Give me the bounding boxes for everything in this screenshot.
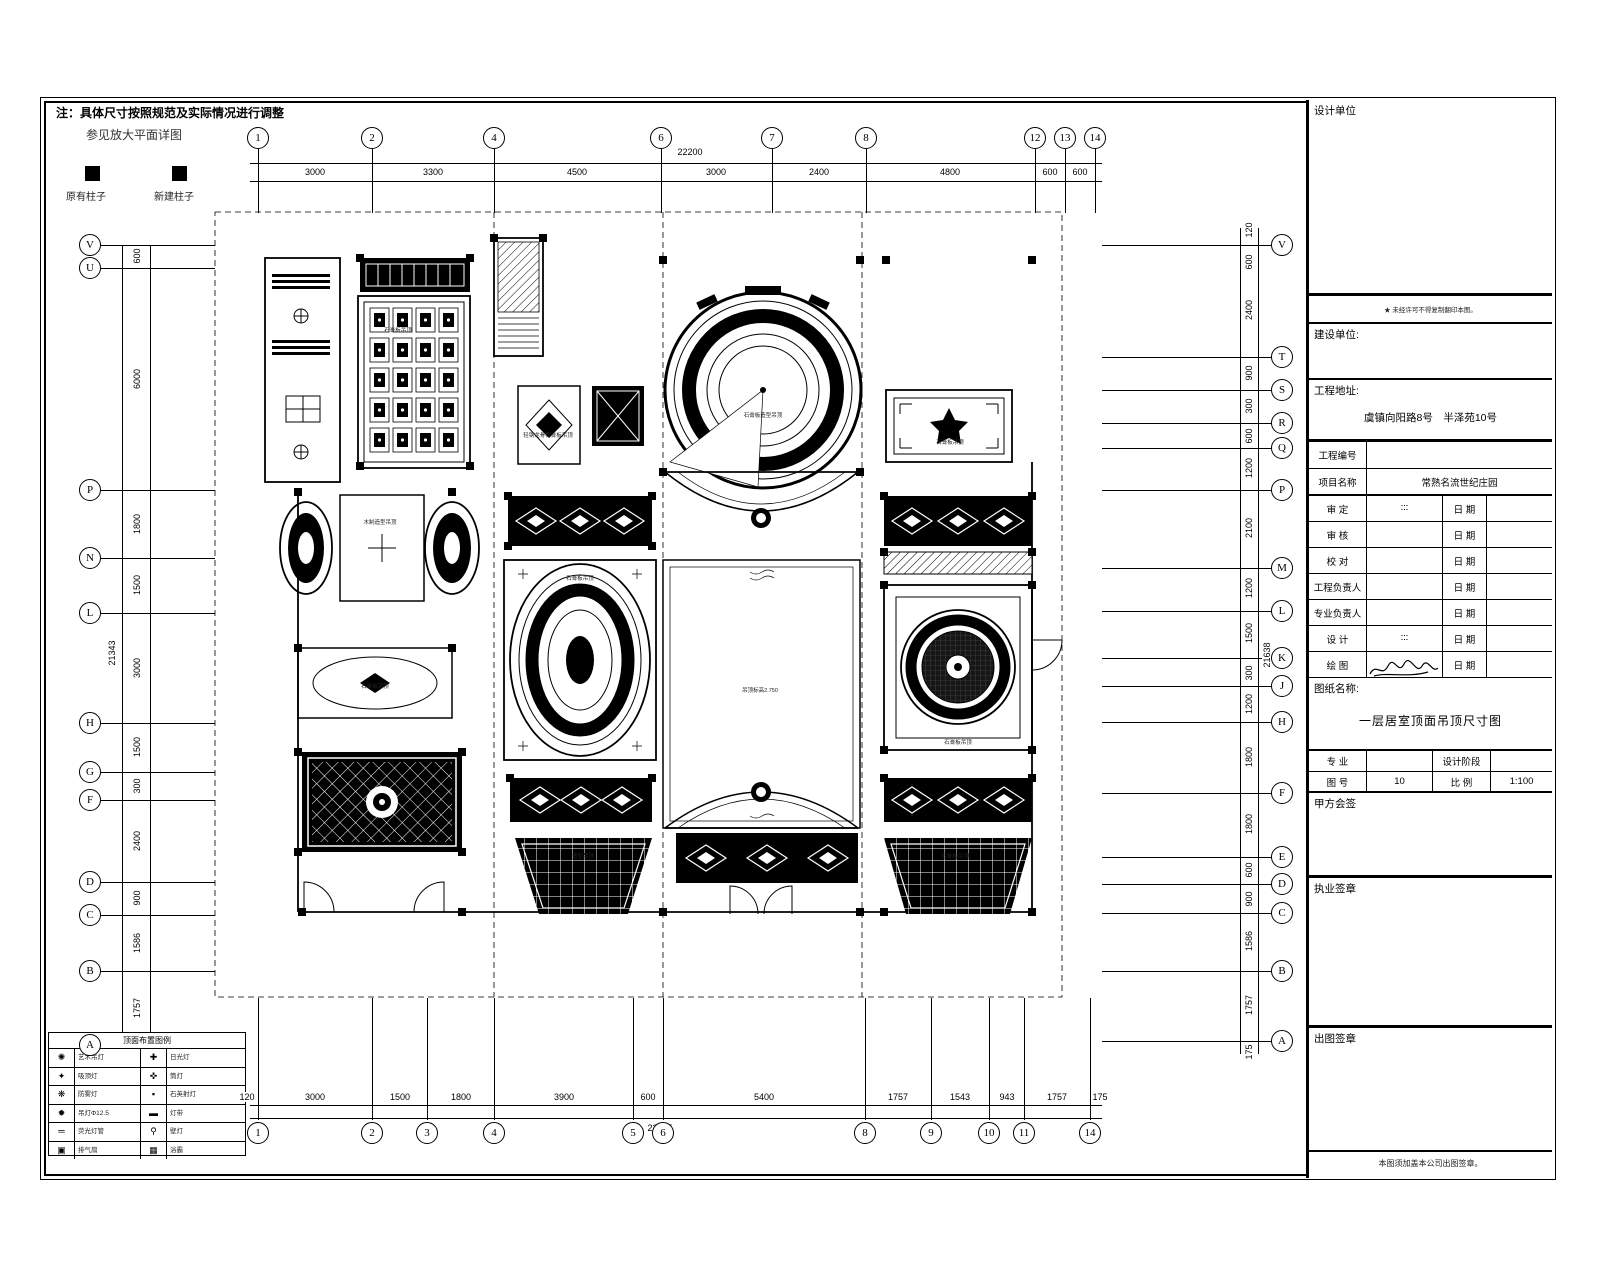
grid-leader-line <box>1102 971 1272 972</box>
plan-label: 石膏板吊顶 <box>361 682 389 690</box>
grid-bubble: 6 <box>650 127 672 149</box>
grid-bubble: 8 <box>855 127 877 149</box>
dimension-tick <box>772 158 773 168</box>
dimension-tick <box>1254 390 1263 391</box>
dimension-tick <box>372 158 373 168</box>
grid-leader-line <box>101 268 215 269</box>
dimension-tick <box>866 158 867 168</box>
dimension-value: 1200 <box>1244 457 1254 479</box>
legend-label: 排气扇 <box>75 1142 141 1160</box>
legend-row: ❋防雾灯▪石英射灯 <box>49 1086 245 1105</box>
sign-row: 设 计∶∶∶日 期 <box>1309 626 1552 652</box>
grid-bubble: 1 <box>247 127 269 149</box>
license-seal-label: 执业签章 <box>1314 883 1356 895</box>
dimension-value: 1800 <box>132 513 142 535</box>
sign-row-value <box>1367 574 1443 599</box>
sign-row-label: 工程负责人 <box>1309 574 1367 599</box>
legend-label: 石英射灯 <box>167 1086 241 1104</box>
sign-row-value: ∶∶∶ <box>1367 626 1443 651</box>
dimension-tick <box>146 723 155 724</box>
grid-bubble: V <box>1271 234 1293 256</box>
dimension-tick <box>146 613 155 614</box>
grid-leader-line <box>101 772 215 773</box>
dimension-value: 1500 <box>389 1092 411 1102</box>
grid-bubble: 2 <box>361 127 383 149</box>
dimension-value: 900 <box>1244 364 1254 381</box>
stage-label: 设计阶段 <box>1433 751 1491 771</box>
date-label: 日 期 <box>1443 626 1487 651</box>
legend-symbol-icon: ❋ <box>49 1086 75 1104</box>
title-block: 设计单位 ★ 未经许可不得复制翻印本图。 建设单位: 工程地址: 虞镇向阳路8号… <box>1306 100 1552 1178</box>
sign-row-label: 校 对 <box>1309 548 1367 573</box>
dimension-tick <box>661 158 662 168</box>
date-value <box>1487 574 1552 599</box>
grid-bubble: B <box>1271 960 1293 982</box>
grid-bubble: E <box>1271 846 1293 868</box>
grid-bubble: F <box>1271 782 1293 804</box>
dimension-value: 6000 <box>132 368 142 390</box>
dimension-value: 300 <box>1244 397 1254 414</box>
new-column-label: 新建柱子 <box>154 188 194 203</box>
grid-leader-line <box>1102 793 1272 794</box>
dimension-line <box>1240 228 1241 1054</box>
sign-row: 审 核日 期 <box>1309 522 1552 548</box>
legend-label: 吸顶灯 <box>75 1068 141 1086</box>
ceiling-legend: 顶面布置图例 ✺艺术吊灯✚日光灯✦吸顶灯✜筒灯❋防雾灯▪石英射灯✹吊灯Φ12.5… <box>48 1032 246 1156</box>
date-label: 日 期 <box>1443 600 1487 625</box>
dimension-value: 1586 <box>132 932 142 954</box>
dimension-tick <box>1254 793 1263 794</box>
dimension-value: 4800 <box>939 167 961 177</box>
dimension-value: 600 <box>639 1092 656 1102</box>
legend-symbol-icon: ✺ <box>49 1049 75 1067</box>
dimension-tick <box>865 1101 866 1110</box>
grid-leader-line <box>101 613 215 614</box>
dimension-tick <box>1065 176 1066 186</box>
issue-seal-label: 出图签章 <box>1314 1033 1356 1045</box>
dimension-value: 175 <box>1244 1043 1254 1060</box>
legend-row: ✹吊灯Φ12.5▬灯带 <box>49 1105 245 1124</box>
general-note: 注：具体尺寸按照规范及实际情况进行调整 <box>56 104 284 121</box>
dimension-tick <box>372 176 373 186</box>
sign-row-label: 专业负责人 <box>1309 600 1367 625</box>
grid-leader-line <box>101 915 215 916</box>
grid-bubble: 3 <box>416 1122 438 1144</box>
plan-label: 木制造型吊顶 <box>363 518 396 526</box>
project-name-label: 项目名称 <box>1309 469 1367 494</box>
grid-bubble: 9 <box>920 1122 942 1144</box>
dimension-value: 3000 <box>132 657 142 679</box>
legend-symbol-icon: ▪ <box>141 1086 167 1104</box>
grid-leader-line <box>101 882 215 883</box>
grid-bubble: L <box>1271 600 1293 622</box>
dimension-tick <box>772 176 773 186</box>
stamp-note: ★ 未经许可不得复制翻印本图。 <box>1384 304 1477 314</box>
dimension-value: 2400 <box>132 830 142 852</box>
dimension-tick <box>1254 245 1263 246</box>
legend-symbol-icon: ✦ <box>49 1068 75 1086</box>
dimension-value: 1757 <box>1244 994 1254 1016</box>
dimension-value: 2400 <box>1244 299 1254 321</box>
legend-symbol-icon: ▣ <box>49 1142 75 1160</box>
dimension-tick <box>866 176 867 186</box>
dimension-value: 1500 <box>1244 622 1254 644</box>
dimension-value: 1800 <box>1244 746 1254 768</box>
plan-label: 轻钢龙骨石膏板吊顶 <box>523 431 573 439</box>
dimension-value: 1757 <box>887 1092 909 1102</box>
grid-bubble: 7 <box>761 127 783 149</box>
dimension-line <box>250 1118 1102 1119</box>
dimension-value: 600 <box>1244 253 1254 270</box>
dimension-tick <box>146 245 155 246</box>
dimension-tick <box>1254 568 1263 569</box>
sign-row-value <box>1367 548 1443 573</box>
bottom-note: 本图须加盖本公司出图签章。 <box>1379 1158 1483 1169</box>
grid-leader-line <box>1102 722 1272 723</box>
sign-row-label: 审 定 <box>1309 496 1367 521</box>
dimension-tick <box>1254 884 1263 885</box>
dimension-value: 4500 <box>566 167 588 177</box>
dimension-tick <box>1254 423 1263 424</box>
legend-label: 日光灯 <box>167 1049 241 1067</box>
major-value <box>1367 751 1433 771</box>
project-no-value <box>1367 442 1552 468</box>
sheet-name-value: 一层居室顶面吊顶尺寸图 <box>1314 712 1547 729</box>
grid-bubble: 5 <box>622 1122 644 1144</box>
grid-bubble: S <box>1271 379 1293 401</box>
plan-label: 石膏板造型吊顶 <box>744 411 783 419</box>
dimension-tick <box>146 882 155 883</box>
grid-bubble: N <box>79 547 101 569</box>
dimension-tick <box>258 176 259 186</box>
dimension-value: 943 <box>998 1092 1015 1102</box>
grid-leader-line <box>1102 357 1272 358</box>
dimension-line <box>150 245 151 1045</box>
dimension-value: 175 <box>1091 1092 1108 1102</box>
legend-label: 浴霸 <box>167 1142 241 1160</box>
grid-bubble: 13 <box>1054 127 1076 149</box>
dimension-value: 600 <box>1041 167 1058 177</box>
plan-label: 石膏板吊顶 <box>936 438 964 446</box>
dimension-value: 1757 <box>1046 1092 1068 1102</box>
legend-symbol-icon: ▦ <box>141 1142 167 1160</box>
dimension-line <box>250 1105 1102 1106</box>
grid-leader-line <box>101 558 215 559</box>
grid-leader-line <box>101 800 215 801</box>
sign-row: 校 对日 期 <box>1309 548 1552 574</box>
dimension-value: 1800 <box>450 1092 472 1102</box>
date-label: 日 期 <box>1443 652 1487 677</box>
dimension-tick <box>1254 1041 1263 1042</box>
dimension-value: 600 <box>132 247 142 264</box>
dimension-value: 2400 <box>808 167 830 177</box>
dimension-tick <box>1095 158 1096 168</box>
dimension-value: 600 <box>1071 167 1088 177</box>
dimension-tick <box>494 176 495 186</box>
dimension-tick <box>1254 913 1263 914</box>
dimension-tick <box>427 1101 428 1110</box>
project-name-value: 常熟名流世纪庄园 <box>1367 469 1552 494</box>
date-value <box>1487 652 1552 677</box>
dimension-value: 5400 <box>753 1092 775 1102</box>
date-value <box>1487 600 1552 625</box>
dimension-value: 300 <box>1244 664 1254 681</box>
grid-leader-line <box>1102 913 1272 914</box>
grid-leader-line <box>1102 686 1272 687</box>
sign-row-label: 设 计 <box>1309 626 1367 651</box>
grid-bubble: K <box>1271 647 1293 669</box>
dimension-tick <box>1254 490 1263 491</box>
drawing-sheet: 注：具体尺寸按照规范及实际情况进行调整 参见放大平面详图 原有柱子 新建柱子 <box>0 0 1600 1280</box>
dimension-value: 1200 <box>1244 693 1254 715</box>
dimension-tick <box>146 490 155 491</box>
new-column-symbol <box>172 166 187 181</box>
dimension-tick <box>989 1101 990 1110</box>
dimension-tick <box>1024 1101 1025 1110</box>
grid-leader-line <box>1102 448 1272 449</box>
dimension-tick <box>1254 686 1263 687</box>
date-label: 日 期 <box>1443 496 1487 521</box>
dimension-tick <box>1254 611 1263 612</box>
owner-sign-label: 甲方会签 <box>1314 798 1356 810</box>
legend-row: ✺艺术吊灯✚日光灯 <box>49 1049 245 1068</box>
legend-symbol-icon: ═ <box>49 1123 75 1141</box>
grid-bubble: P <box>79 479 101 501</box>
dimension-tick <box>258 1101 259 1110</box>
plan-label: 造型吊顶 <box>572 852 594 860</box>
existing-column-symbol <box>85 166 100 181</box>
date-value <box>1487 626 1552 651</box>
grid-bubble: B <box>79 960 101 982</box>
dimension-tick <box>1095 176 1096 186</box>
dimension-value: 120 <box>238 1092 255 1102</box>
grid-bubble: H <box>1271 711 1293 733</box>
dimension-value: 1500 <box>132 736 142 758</box>
dimension-value: 900 <box>1244 890 1254 907</box>
scale-label: 比 例 <box>1433 772 1491 791</box>
sign-row: 工程负责人日 期 <box>1309 574 1552 600</box>
grid-leader-line <box>1102 568 1272 569</box>
grid-bubble: 4 <box>483 127 505 149</box>
grid-bubble: V <box>79 234 101 256</box>
dimension-value: 21343 <box>107 639 117 666</box>
grid-bubble: F <box>79 789 101 811</box>
date-label: 日 期 <box>1443 574 1487 599</box>
ceiling-plan-svg <box>200 200 1080 1020</box>
grid-leader-line <box>1102 490 1272 491</box>
grid-leader-line <box>1102 658 1272 659</box>
dimension-tick <box>258 158 259 168</box>
dimension-tick <box>1065 158 1066 168</box>
grid-bubble: 1 <box>247 1122 269 1144</box>
major-label: 专 业 <box>1309 751 1367 771</box>
legend-label: 荧光灯管 <box>75 1123 141 1141</box>
grid-bubble: T <box>1271 346 1293 368</box>
plan-label: 石膏板吊顶 <box>941 852 969 860</box>
legend-label: 筒灯 <box>167 1068 241 1086</box>
dimension-value: 1586 <box>1244 930 1254 952</box>
grid-leader-line <box>101 245 215 246</box>
dimension-tick <box>146 268 155 269</box>
dimension-value: 3000 <box>304 167 326 177</box>
detail-reference-note: 参见放大平面详图 <box>86 126 182 143</box>
grid-bubble: 8 <box>854 1122 876 1144</box>
plan-label: 石膏板吊顶 <box>384 326 412 334</box>
grid-bubble: 10 <box>978 1122 1000 1144</box>
legend-symbol-icon: ✚ <box>141 1049 167 1067</box>
plan-label: 吊顶标高2.750 <box>742 686 778 694</box>
grid-bubble: M <box>1271 557 1293 579</box>
dimension-tick <box>663 1101 664 1110</box>
sign-row-value: ∶∶∶ <box>1367 496 1443 521</box>
dimension-tick <box>1254 722 1263 723</box>
grid-bubble: G <box>79 761 101 783</box>
dimension-value: 900 <box>132 889 142 906</box>
grid-bubble: D <box>1271 873 1293 895</box>
grid-leader-line <box>1102 857 1272 858</box>
dimension-tick <box>372 1101 373 1110</box>
grid-leader-line <box>101 490 215 491</box>
grid-bubble: L <box>79 602 101 624</box>
dimension-value: 600 <box>1244 427 1254 444</box>
dimension-tick <box>1254 357 1263 358</box>
dimension-tick <box>661 176 662 186</box>
dimension-line <box>1258 228 1259 1054</box>
grid-leader-line <box>1102 884 1272 885</box>
dimension-tick <box>494 1101 495 1110</box>
dimension-value: 2100 <box>1244 517 1254 539</box>
dimension-tick <box>1254 971 1263 972</box>
dimension-line <box>122 245 123 1045</box>
build-unit-label: 建设单位: <box>1314 329 1359 341</box>
grid-bubble: 6 <box>652 1122 674 1144</box>
project-no-label: 工程编号 <box>1309 442 1367 468</box>
legend-label: 壁灯 <box>167 1123 241 1141</box>
fig-no-value: 10 <box>1367 772 1433 791</box>
grid-bubble: D <box>79 871 101 893</box>
dimension-tick <box>146 915 155 916</box>
grid-bubble: P <box>1271 479 1293 501</box>
grid-bubble: A <box>79 1034 101 1056</box>
grid-bubble: 11 <box>1013 1122 1035 1144</box>
grid-bubble: 12 <box>1024 127 1046 149</box>
fig-no-label: 图 号 <box>1309 772 1367 791</box>
drafter-signature <box>1368 658 1440 680</box>
address-value: 虞镇向阳路8号 半泽苑10号 <box>1314 410 1547 425</box>
sign-row: 专业负责人日 期 <box>1309 600 1552 626</box>
dimension-tick <box>931 1101 932 1110</box>
sign-row-value <box>1367 522 1443 547</box>
legend-symbol-icon: ▬ <box>141 1105 167 1123</box>
grid-bubble: J <box>1271 675 1293 697</box>
date-label: 日 期 <box>1443 548 1487 573</box>
date-value <box>1487 522 1552 547</box>
dimension-tick <box>1254 857 1263 858</box>
sign-row: 审 定∶∶∶日 期 <box>1309 496 1552 522</box>
date-value <box>1487 548 1552 573</box>
dimension-value: 120 <box>1244 221 1254 238</box>
dimension-value: 600 <box>1244 861 1254 878</box>
scale-value: 1:100 <box>1491 772 1552 791</box>
dimension-tick <box>1090 1101 1091 1110</box>
grid-leader-line <box>1102 245 1272 246</box>
date-value <box>1487 496 1552 521</box>
design-unit-label: 设计单位 <box>1314 105 1356 117</box>
legend-row: ✦吸顶灯✜筒灯 <box>49 1068 245 1087</box>
dimension-tick <box>146 800 155 801</box>
grid-bubble: R <box>1271 412 1293 434</box>
grid-bubble: U <box>79 257 101 279</box>
grid-leader-line <box>1102 1041 1272 1042</box>
dimension-tick <box>146 772 155 773</box>
legend-label: 防雾灯 <box>75 1086 141 1104</box>
legend-label: 吊灯Φ12.5 <box>75 1105 141 1123</box>
grid-bubble: A <box>1271 1030 1293 1052</box>
dimension-tick <box>1035 158 1036 168</box>
dimension-value: 1757 <box>132 997 142 1019</box>
legend-symbol-icon: ⚲ <box>141 1123 167 1141</box>
grid-bubble: Q <box>1271 437 1293 459</box>
existing-column-label: 原有柱子 <box>66 188 106 203</box>
grid-bubble: 14 <box>1084 127 1106 149</box>
grid-bubble: 4 <box>483 1122 505 1144</box>
dimension-tick <box>494 158 495 168</box>
grid-bubble: 2 <box>361 1122 383 1144</box>
grid-bubble: H <box>79 712 101 734</box>
dimension-value: 1500 <box>132 574 142 596</box>
stage-value <box>1491 751 1552 771</box>
grid-bubble: C <box>79 904 101 926</box>
dimension-value: 3000 <box>304 1092 326 1102</box>
dimension-value: 3900 <box>553 1092 575 1102</box>
dimension-value: 1543 <box>949 1092 971 1102</box>
legend-symbol-icon: ✜ <box>141 1068 167 1086</box>
grid-bubble: C <box>1271 902 1293 924</box>
grid-leader-line <box>101 723 215 724</box>
legend-row: ═荧光灯管⚲壁灯 <box>49 1123 245 1142</box>
dimension-value: 1200 <box>1244 577 1254 599</box>
grid-leader-line <box>1102 423 1272 424</box>
sign-row-label: 审 核 <box>1309 522 1367 547</box>
dimension-line <box>250 163 1102 164</box>
grid-leader-line <box>1102 611 1272 612</box>
plan-label: 石膏板吊顶 <box>944 738 972 746</box>
dimension-tick <box>633 1101 634 1110</box>
dimension-line <box>250 181 1102 182</box>
dimension-value: 22200 <box>676 147 703 157</box>
dimension-value: 1800 <box>1244 813 1254 835</box>
sign-row-value <box>1367 600 1443 625</box>
sign-row-label: 绘 图 <box>1309 652 1367 677</box>
dimension-tick <box>1254 448 1263 449</box>
grid-leader-line <box>1102 390 1272 391</box>
sheet-name-label: 图纸名称: <box>1314 683 1359 695</box>
dimension-tick <box>1035 176 1036 186</box>
dimension-value: 3300 <box>422 167 444 177</box>
legend-symbol-icon: ✹ <box>49 1105 75 1123</box>
legend-row: ▣排气扇▦浴霸 <box>49 1142 245 1160</box>
address-label: 工程地址: <box>1314 385 1359 397</box>
plan-label: 石膏板吊顶 <box>566 574 594 582</box>
date-label: 日 期 <box>1443 522 1487 547</box>
grid-leader-line <box>101 971 215 972</box>
dimension-tick <box>146 558 155 559</box>
grid-bubble: 14 <box>1079 1122 1101 1144</box>
dimension-value: 3000 <box>705 167 727 177</box>
legend-label: 灯带 <box>167 1105 241 1123</box>
dimension-tick <box>146 971 155 972</box>
dimension-value: 300 <box>132 777 142 794</box>
